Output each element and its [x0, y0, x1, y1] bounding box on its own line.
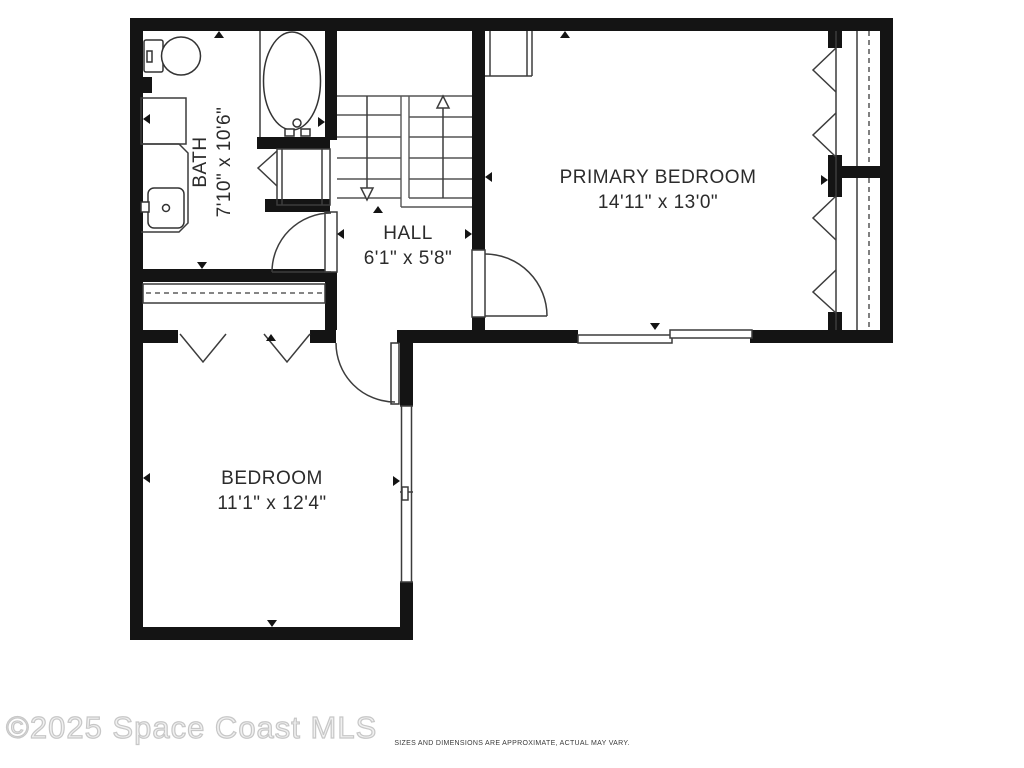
hall-label: HALL — [383, 223, 433, 244]
toilet — [144, 37, 201, 75]
bath-doorway — [325, 212, 337, 272]
bifold-door-4 — [813, 270, 836, 313]
wall-bedroom-top-b — [310, 330, 336, 343]
floor-plan-page: BATH 7'10" x 10'6" HALL 6'1" x 5'8" PRIM… — [0, 0, 1024, 768]
stair-landing-nook — [485, 31, 532, 76]
bedroom-door-arc — [336, 343, 395, 402]
primary-bedroom-dims: 14'11" x 13'0" — [598, 192, 718, 213]
wall-closet-stub-mid — [828, 155, 842, 197]
wall-primary-bottom-left — [472, 330, 578, 343]
wall-closet-stub-bottom — [828, 312, 842, 330]
stairs-down-arrow — [361, 96, 373, 200]
bifold-door-3 — [813, 196, 836, 240]
wall-hall-primary-upper — [472, 18, 485, 250]
bath-door — [272, 212, 337, 272]
sliding-door — [578, 330, 752, 343]
primary-bedroom-label: PRIMARY BEDROOM — [560, 167, 757, 188]
floor-plan-drawing: BATH 7'10" x 10'6" HALL 6'1" x 5'8" PRIM… — [0, 0, 1024, 768]
walls — [130, 18, 893, 640]
bath-dims: 7'10" x 10'6" — [214, 107, 235, 218]
bedroom-door-leaf — [391, 343, 399, 404]
primary-doorway — [472, 250, 485, 317]
dimensions-disclaimer: SIZES AND DIMENSIONS ARE APPROXIMATE, AC… — [394, 740, 629, 747]
staircase — [337, 96, 472, 207]
wall-bath-right — [325, 18, 337, 140]
wall-right — [880, 18, 893, 343]
stair-divider — [401, 96, 472, 207]
wall-primary-bottom-right — [750, 330, 893, 343]
linen-bifold-door — [258, 151, 277, 186]
bathtub — [260, 31, 321, 137]
primary-bedroom-door — [472, 250, 547, 317]
bifold-door-5 — [180, 334, 226, 362]
wall-closet-stub-top — [828, 31, 842, 48]
window-sash-jog — [402, 487, 408, 500]
wall-toilet-stub — [143, 77, 152, 93]
wall-tub-stub — [257, 137, 330, 149]
doors — [272, 212, 752, 404]
wall-bedroom-right-upper — [400, 343, 413, 406]
wall-hall-bottom — [397, 330, 472, 343]
bedroom-door — [336, 343, 399, 404]
wall-closet-separator — [842, 166, 880, 178]
bedroom-label: BEDROOM — [221, 468, 323, 489]
bedroom-window — [400, 406, 413, 582]
hall-dims: 6'1" x 5'8" — [364, 248, 453, 269]
wall-bedroom-bottom — [130, 627, 413, 640]
wall-bedroom-top-a — [130, 330, 178, 343]
mls-watermark: ©2025 Space Coast MLS — [6, 710, 377, 746]
bath-label: BATH — [190, 136, 211, 187]
bifold-door-2 — [813, 113, 836, 157]
linen-closet — [258, 149, 330, 205]
stair-treads-right — [409, 117, 472, 179]
closet-shelf — [143, 284, 325, 303]
primary-door-arc — [485, 254, 547, 316]
stair-treads-left — [337, 115, 401, 198]
bath-door-arc — [272, 213, 331, 272]
bedroom-closet — [143, 284, 325, 362]
bifold-door-1 — [813, 48, 836, 92]
stairs-up-arrow — [437, 96, 449, 198]
dimension-markers — [143, 31, 828, 627]
wall-hall-primary-lower — [472, 317, 485, 330]
wall-bath-bottom — [130, 269, 337, 282]
wall-top — [130, 18, 893, 31]
bedroom-dims: 11'1" x 12'4" — [217, 493, 326, 514]
